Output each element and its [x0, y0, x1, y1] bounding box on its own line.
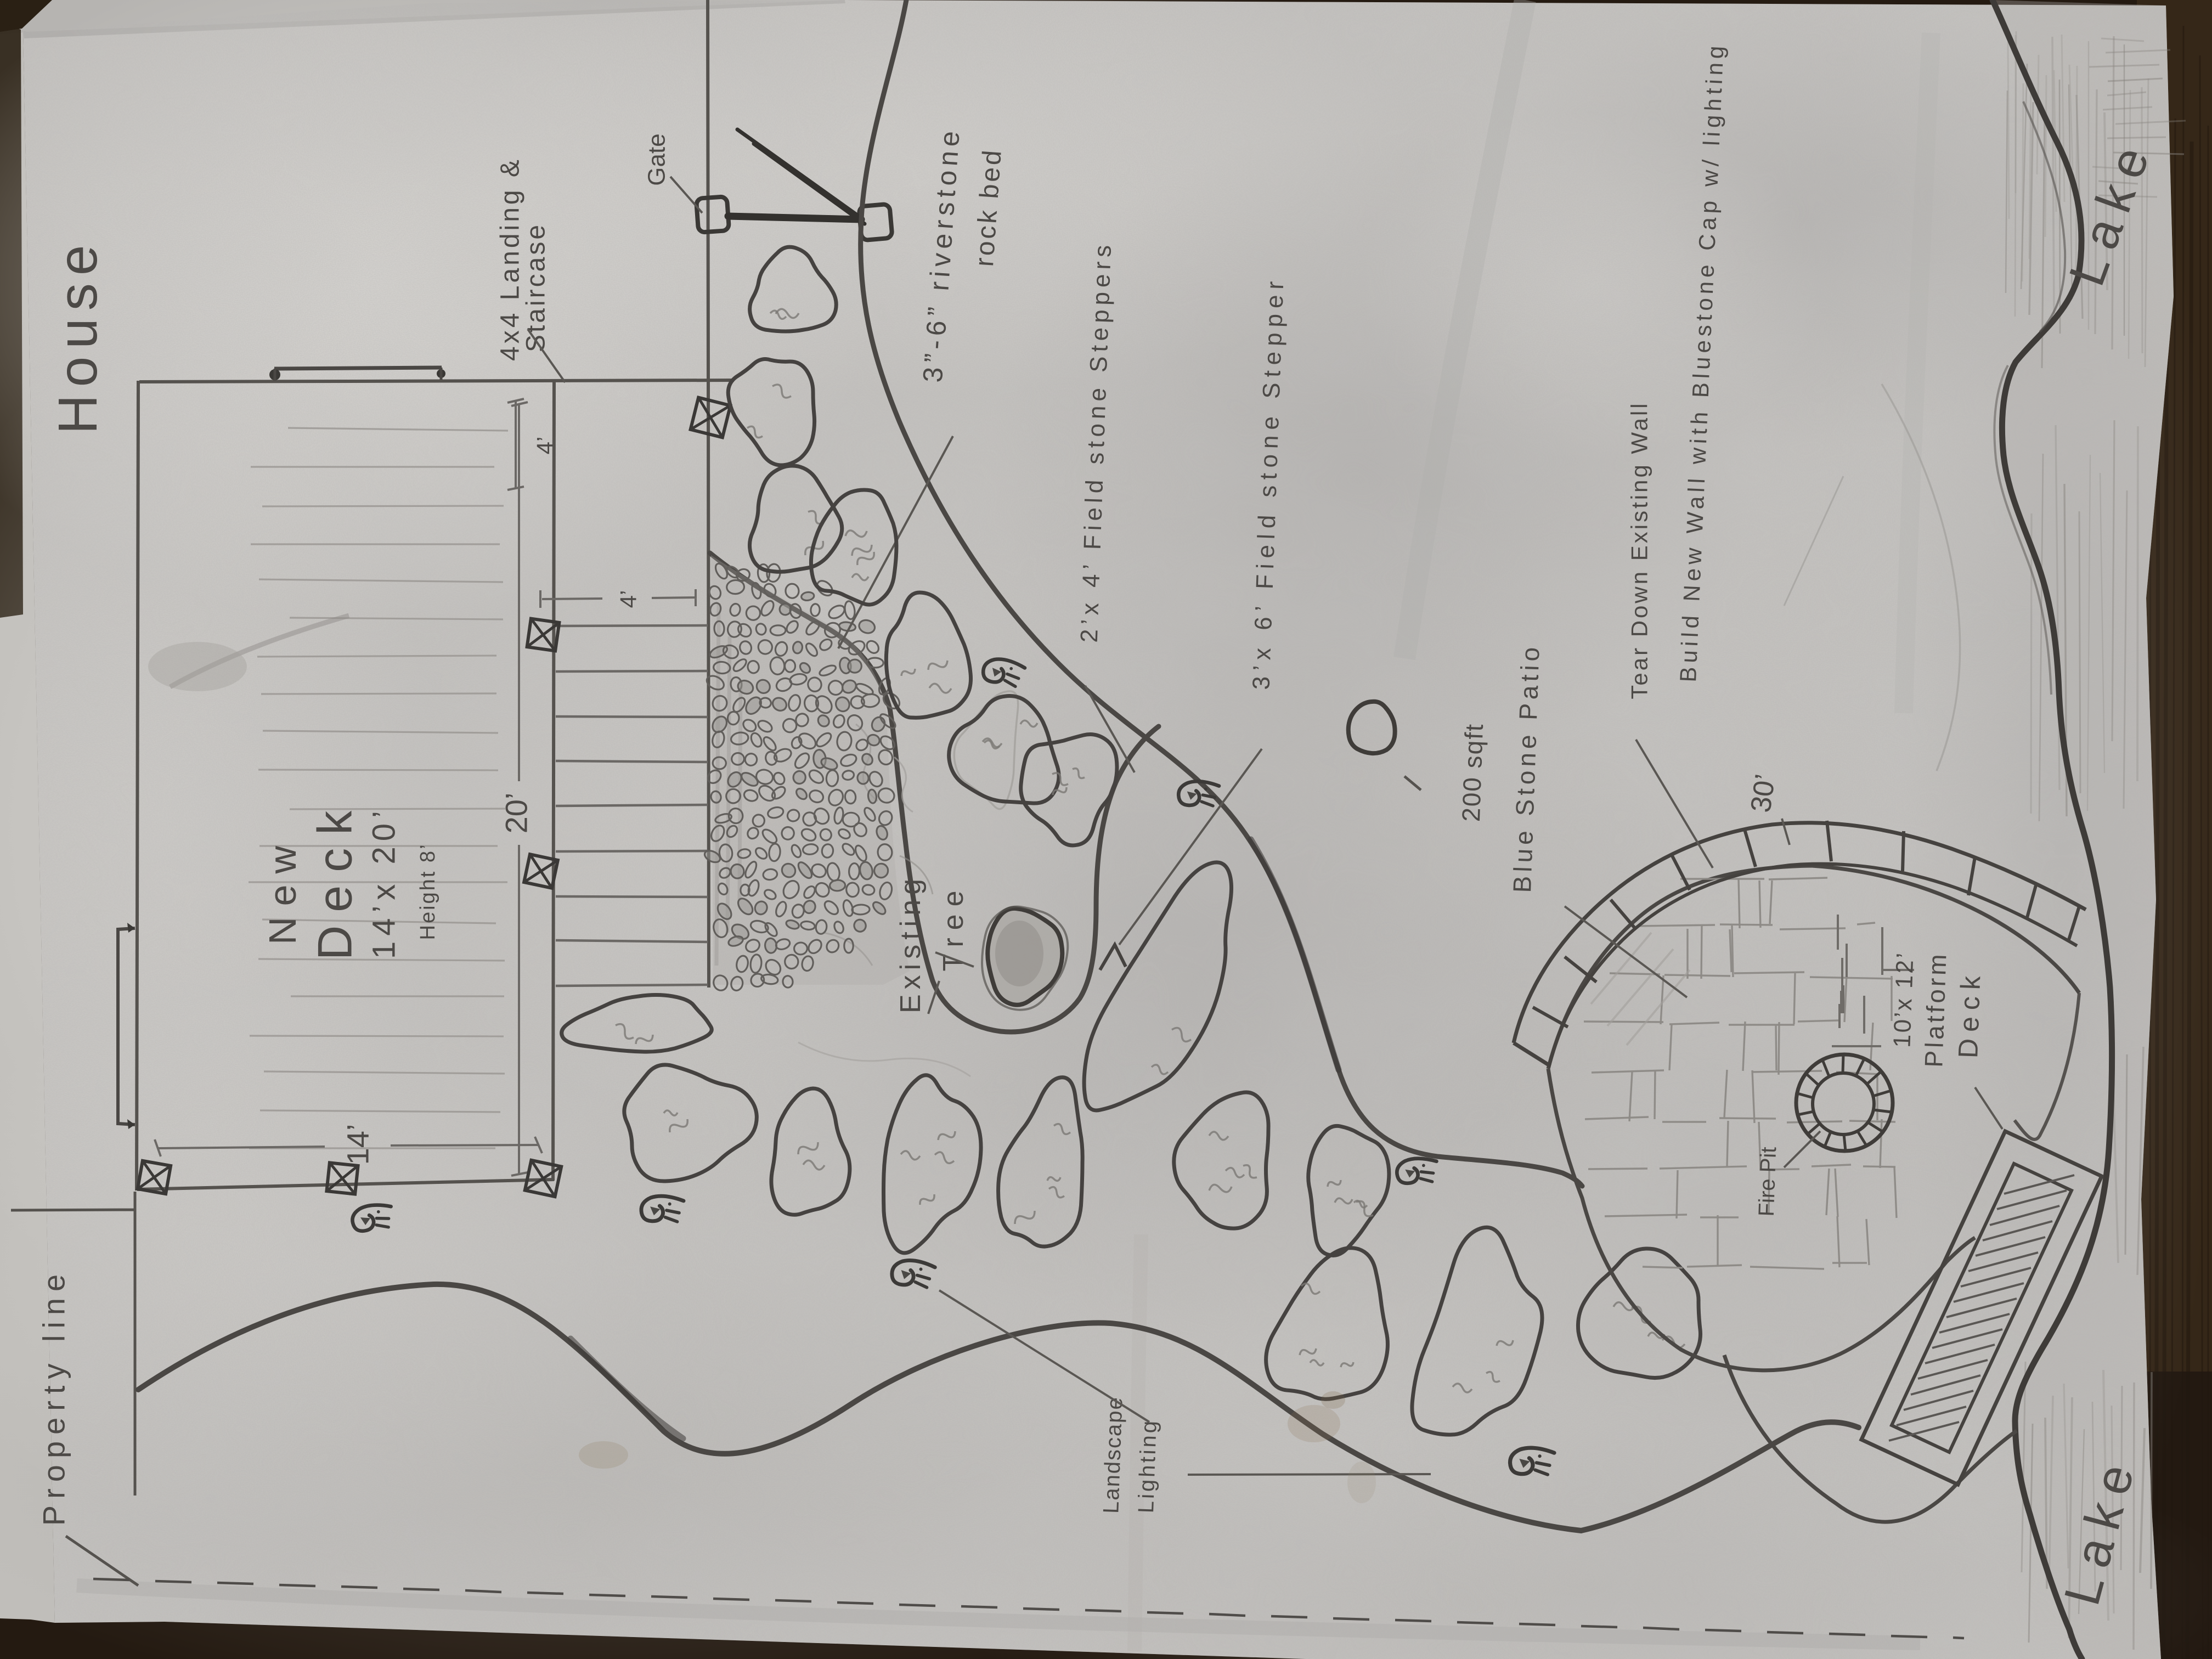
svg-text:Lighting: Lighting — [1134, 1418, 1161, 1514]
svg-text:Existing: Existing — [895, 874, 927, 1013]
svg-text:Staircase: Staircase — [522, 223, 551, 352]
svg-text:20’: 20’ — [499, 793, 534, 834]
svg-text:14’x 20’: 14’x 20’ — [366, 805, 402, 959]
svg-text:Deck: Deck — [1953, 969, 1987, 1059]
svg-text:200 sqft: 200 sqft — [1457, 723, 1488, 822]
svg-text:Landscape: Landscape — [1099, 1396, 1127, 1514]
svg-text:New: New — [261, 835, 304, 945]
svg-text:Gate: Gate — [644, 133, 670, 185]
svg-text:Property line: Property line — [37, 1268, 71, 1526]
svg-text:14’: 14’ — [341, 1124, 375, 1165]
svg-text:House: House — [47, 237, 109, 434]
svg-text:30’: 30’ — [1745, 772, 1781, 815]
svg-text:Height 8’: Height 8’ — [416, 843, 439, 940]
svg-text:Tear Down Existing Wall: Tear Down Existing Wall — [1627, 401, 1652, 699]
svg-text:Deck: Deck — [308, 798, 362, 961]
svg-text:4x4 Landing &: 4x4 Landing & — [496, 157, 525, 361]
svg-text:4’: 4’ — [616, 590, 641, 608]
svg-text:Fire Pit: Fire Pit — [1754, 1147, 1781, 1217]
svg-text:10’x 12’: 10’x 12’ — [1888, 951, 1918, 1048]
svg-text:4’: 4’ — [532, 437, 558, 455]
svg-text:Platform: Platform — [1919, 951, 1951, 1068]
